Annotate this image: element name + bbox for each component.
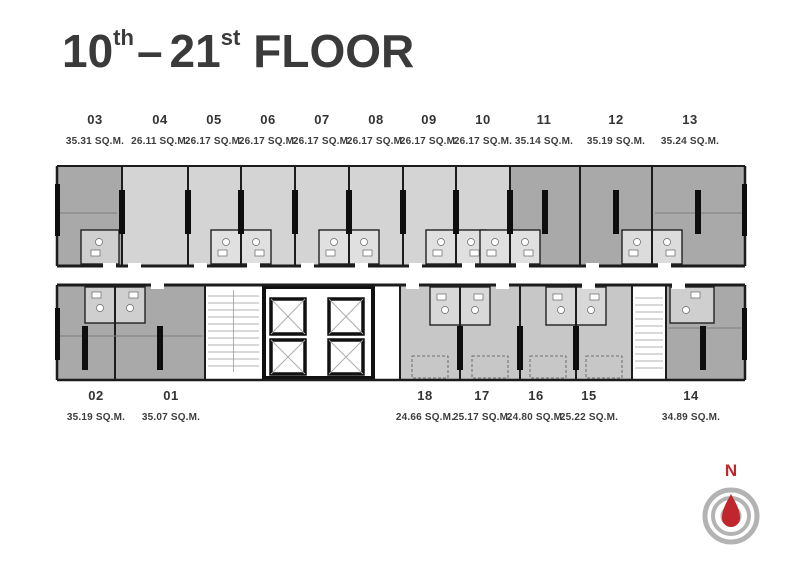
sink-icon (666, 250, 675, 256)
unit-number: 01 (142, 388, 200, 403)
unit-number: 08 (347, 112, 405, 127)
sink-icon (363, 250, 372, 256)
sink-icon (553, 294, 562, 300)
unit-number: 14 (662, 388, 720, 403)
unit-number: 15 (560, 388, 618, 403)
unit-label-07: 0726.17 SQ.M. (293, 112, 351, 147)
window-bar (55, 184, 60, 236)
sink-icon (437, 294, 446, 300)
unit-label-13: 1335.24 SQ.M. (661, 112, 719, 147)
unit-number: 06 (239, 112, 297, 127)
sink-icon (487, 250, 496, 256)
unit-label-03: 0335.31 SQ.M. (66, 112, 124, 147)
unit-area: 26.17 SQ.M. (293, 136, 351, 147)
unit-number: 02 (67, 388, 125, 403)
unit-label-10: 1026.17 SQ.M. (454, 112, 512, 147)
unit-number: 07 (293, 112, 351, 127)
sink-icon (218, 250, 227, 256)
toilet-icon (96, 239, 103, 246)
unit-area: 26.17 SQ.M. (239, 136, 297, 147)
stairwell-right (632, 285, 666, 380)
unit-area: 25.22 SQ.M. (560, 412, 618, 423)
unit-area: 26.17 SQ.M. (347, 136, 405, 147)
toilet-icon (127, 305, 134, 312)
sink-icon (629, 250, 638, 256)
unit-area: 26.11 SQ.M. (131, 136, 189, 147)
unit-area: 25.17 SQ.M. (453, 412, 511, 423)
unit-label-01: 0135.07 SQ.M. (142, 388, 200, 423)
floor-plan (55, 158, 747, 388)
unit-number: 03 (66, 112, 124, 127)
sink-icon (470, 250, 479, 256)
window-bar (742, 184, 747, 236)
unit-number: 04 (131, 112, 189, 127)
toilet-icon (468, 239, 475, 246)
toilet-icon (558, 307, 565, 314)
unit-area: 26.17 SQ.M. (400, 136, 458, 147)
unit-area: 35.31 SQ.M. (66, 136, 124, 147)
toilet-icon (438, 239, 445, 246)
unit-area: 24.66 SQ.M. (396, 412, 454, 423)
unit-area: 35.19 SQ.M. (587, 136, 645, 147)
unit-label-18: 1824.66 SQ.M. (396, 388, 454, 423)
title-range-end: 21 (170, 25, 221, 77)
unit-area: 35.24 SQ.M. (661, 136, 719, 147)
sink-icon (474, 294, 483, 300)
toilet-icon (223, 239, 230, 246)
unit-04-area (122, 166, 188, 266)
unit-number: 05 (185, 112, 243, 127)
title-range-start-suffix: th (113, 25, 134, 50)
title-floor-word: FLOOR (253, 25, 414, 77)
sink-icon (590, 294, 599, 300)
unit-label-17: 1725.17 SQ.M. (453, 388, 511, 423)
sink-icon (326, 250, 335, 256)
sink-icon (691, 292, 700, 298)
sink-icon (255, 250, 264, 256)
toilet-icon (683, 307, 690, 314)
sink-icon (129, 292, 138, 298)
unit-label-05: 0526.17 SQ.M. (185, 112, 243, 147)
floor-plan-svg (55, 158, 747, 388)
unit-area: 24.80 SQ.M. (507, 412, 565, 423)
title-separator: – (137, 25, 163, 77)
toilet-icon (664, 239, 671, 246)
unit-number: 13 (661, 112, 719, 127)
unit-label-16: 1624.80 SQ.M. (507, 388, 565, 423)
unit-label-14: 1434.89 SQ.M. (662, 388, 720, 423)
unit-area: 35.14 SQ.M. (515, 136, 573, 147)
toilet-icon (472, 307, 479, 314)
unit-number: 10 (454, 112, 512, 127)
window-bar (55, 308, 60, 360)
title-range-start: 10 (62, 25, 113, 77)
unit-label-11: 1135.14 SQ.M. (515, 112, 573, 147)
window-bar (742, 308, 747, 360)
unit-area: 35.19 SQ.M. (67, 412, 125, 423)
unit-area: 35.07 SQ.M. (142, 412, 200, 423)
unit-number: 18 (396, 388, 454, 403)
unit-label-09: 0926.17 SQ.M. (400, 112, 458, 147)
unit-number: 11 (515, 112, 573, 127)
unit-number: 17 (453, 388, 511, 403)
sink-icon (92, 292, 101, 298)
unit-label-02: 0235.19 SQ.M. (67, 388, 125, 423)
unit-label-04: 0426.11 SQ.M. (131, 112, 189, 147)
toilet-icon (361, 239, 368, 246)
toilet-icon (588, 307, 595, 314)
unit-number: 12 (587, 112, 645, 127)
unit-label-06: 0626.17 SQ.M. (239, 112, 297, 147)
toilet-icon (442, 307, 449, 314)
toilet-icon (522, 239, 529, 246)
unit-area: 26.17 SQ.M. (185, 136, 243, 147)
toilet-icon (331, 239, 338, 246)
page-title: 10th–21stFLOOR (62, 24, 414, 78)
toilet-icon (97, 305, 104, 312)
toilet-icon (634, 239, 641, 246)
title-range-end-suffix: st (221, 25, 241, 50)
stairwell-left (205, 285, 262, 380)
elevator-core (262, 285, 375, 380)
sink-icon (524, 250, 533, 256)
unit-area: 26.17 SQ.M. (454, 136, 512, 147)
sink-icon (91, 250, 100, 256)
unit-area: 34.89 SQ.M. (662, 412, 720, 423)
toilet-icon (253, 239, 260, 246)
toilet-icon (492, 239, 499, 246)
bathroom-unit-03 (81, 230, 119, 264)
compass: N (695, 458, 767, 550)
unit-label-15: 1525.22 SQ.M. (560, 388, 618, 423)
compass-north-label: N (725, 461, 737, 480)
sink-icon (433, 250, 442, 256)
unit-number: 09 (400, 112, 458, 127)
unit-label-08: 0826.17 SQ.M. (347, 112, 405, 147)
unit-label-12: 1235.19 SQ.M. (587, 112, 645, 147)
unit-number: 16 (507, 388, 565, 403)
